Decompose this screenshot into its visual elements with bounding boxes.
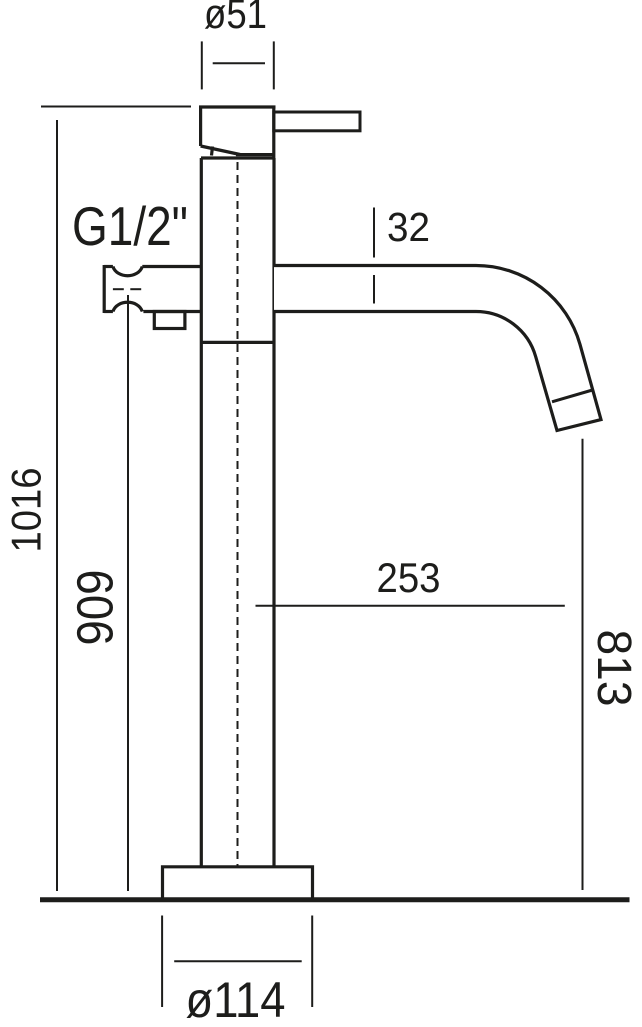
svg-text:32: 32 [387,204,430,250]
svg-text:1016: 1016 [3,468,50,553]
svg-text:909: 909 [67,570,124,646]
svg-text:G1/2": G1/2" [72,196,188,257]
svg-text:253: 253 [377,554,441,601]
svg-text:ø51: ø51 [204,0,267,37]
svg-text:813: 813 [587,630,641,707]
svg-text:ø114: ø114 [186,972,286,1027]
